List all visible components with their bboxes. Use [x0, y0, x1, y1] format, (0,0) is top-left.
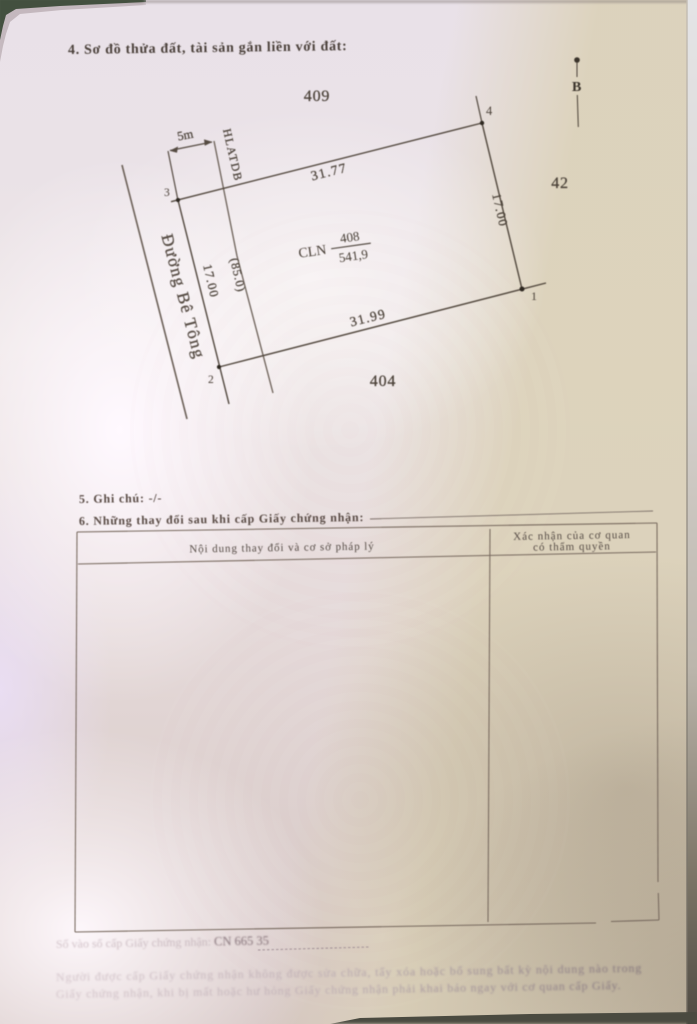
svg-text:17.00: 17.00 [489, 192, 510, 228]
svg-text:HLATDB: HLATDB [220, 128, 244, 183]
svg-text:2: 2 [208, 374, 214, 386]
svg-text:541,9: 541,9 [338, 246, 369, 265]
svg-text:404: 404 [370, 373, 396, 390]
svg-text:408: 408 [339, 228, 360, 246]
svg-text:B: B [572, 80, 581, 95]
svg-text:6. Những thay đổi sau khi cấp: 6. Những thay đổi sau khi cấp Giấy chứng… [79, 510, 364, 528]
svg-text:5m: 5m [176, 127, 195, 144]
svg-text:có thẩm quyền: có thẩm quyền [533, 540, 611, 553]
svg-text:Số vào sổ cấp Giấy chứng nhận:: Số vào sổ cấp Giấy chứng nhận: CN 665 35 [56, 934, 269, 951]
svg-text:4. Sơ đồ thửa đất, tài sản gắn: 4. Sơ đồ thửa đất, tài sản gắn liền với … [68, 39, 348, 58]
svg-text:4: 4 [486, 104, 493, 118]
svg-text:Đường Bê Tông: Đường Bê Tông [157, 232, 209, 361]
svg-text:(85.0): (85.0) [227, 256, 249, 293]
svg-text:CLN: CLN [298, 243, 328, 262]
svg-text:5. Ghi chú: -/-: 5. Ghi chú: -/- [79, 491, 163, 506]
svg-text:3: 3 [164, 187, 170, 199]
svg-text:17.00: 17.00 [200, 263, 221, 299]
svg-text:409: 409 [304, 88, 330, 105]
svg-text:42: 42 [551, 175, 569, 192]
svg-text:Nội dung thay đổi và cơ sở phá: Nội dung thay đổi và cơ sở pháp lý [189, 541, 374, 556]
svg-text:31.77: 31.77 [309, 160, 348, 183]
svg-text:1: 1 [531, 289, 537, 303]
